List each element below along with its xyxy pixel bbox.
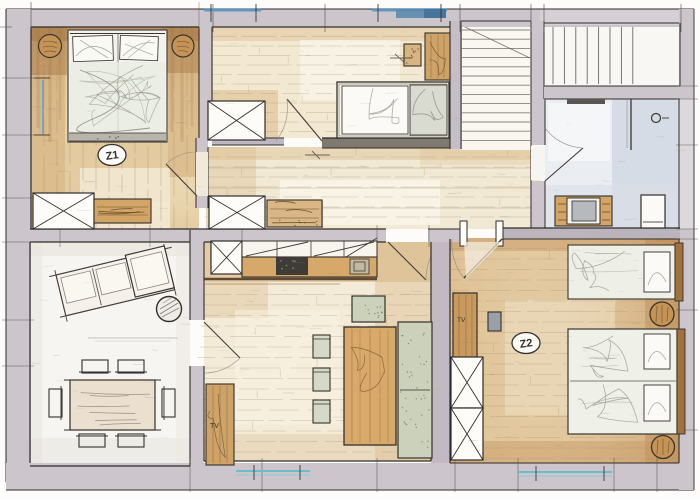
- svg-text:Z1: Z1: [105, 149, 119, 163]
- svg-text:Z2: Z2: [519, 337, 533, 351]
- svg-text:TV: TV: [457, 317, 466, 324]
